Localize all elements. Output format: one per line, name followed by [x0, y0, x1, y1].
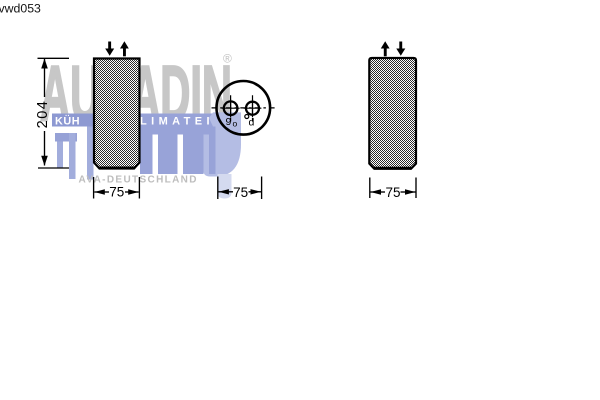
svg-text:AVA-DEUTSCHLAND: AVA-DEUTSCHLAND — [79, 175, 198, 186]
svg-text:vwd053: vwd053 — [0, 2, 41, 16]
svg-text:75: 75 — [385, 185, 400, 200]
svg-text:®: ® — [223, 52, 232, 66]
svg-text:KÜH: KÜH — [55, 114, 80, 127]
svg-text:d: d — [249, 117, 255, 129]
svg-text:75: 75 — [109, 185, 124, 200]
svg-text:o: o — [233, 119, 238, 129]
svg-text:LIMATEI: LIMATEI — [140, 116, 214, 128]
svg-text:9: 9 — [226, 116, 232, 128]
svg-text:75: 75 — [233, 185, 248, 200]
svg-text:204: 204 — [35, 100, 51, 129]
